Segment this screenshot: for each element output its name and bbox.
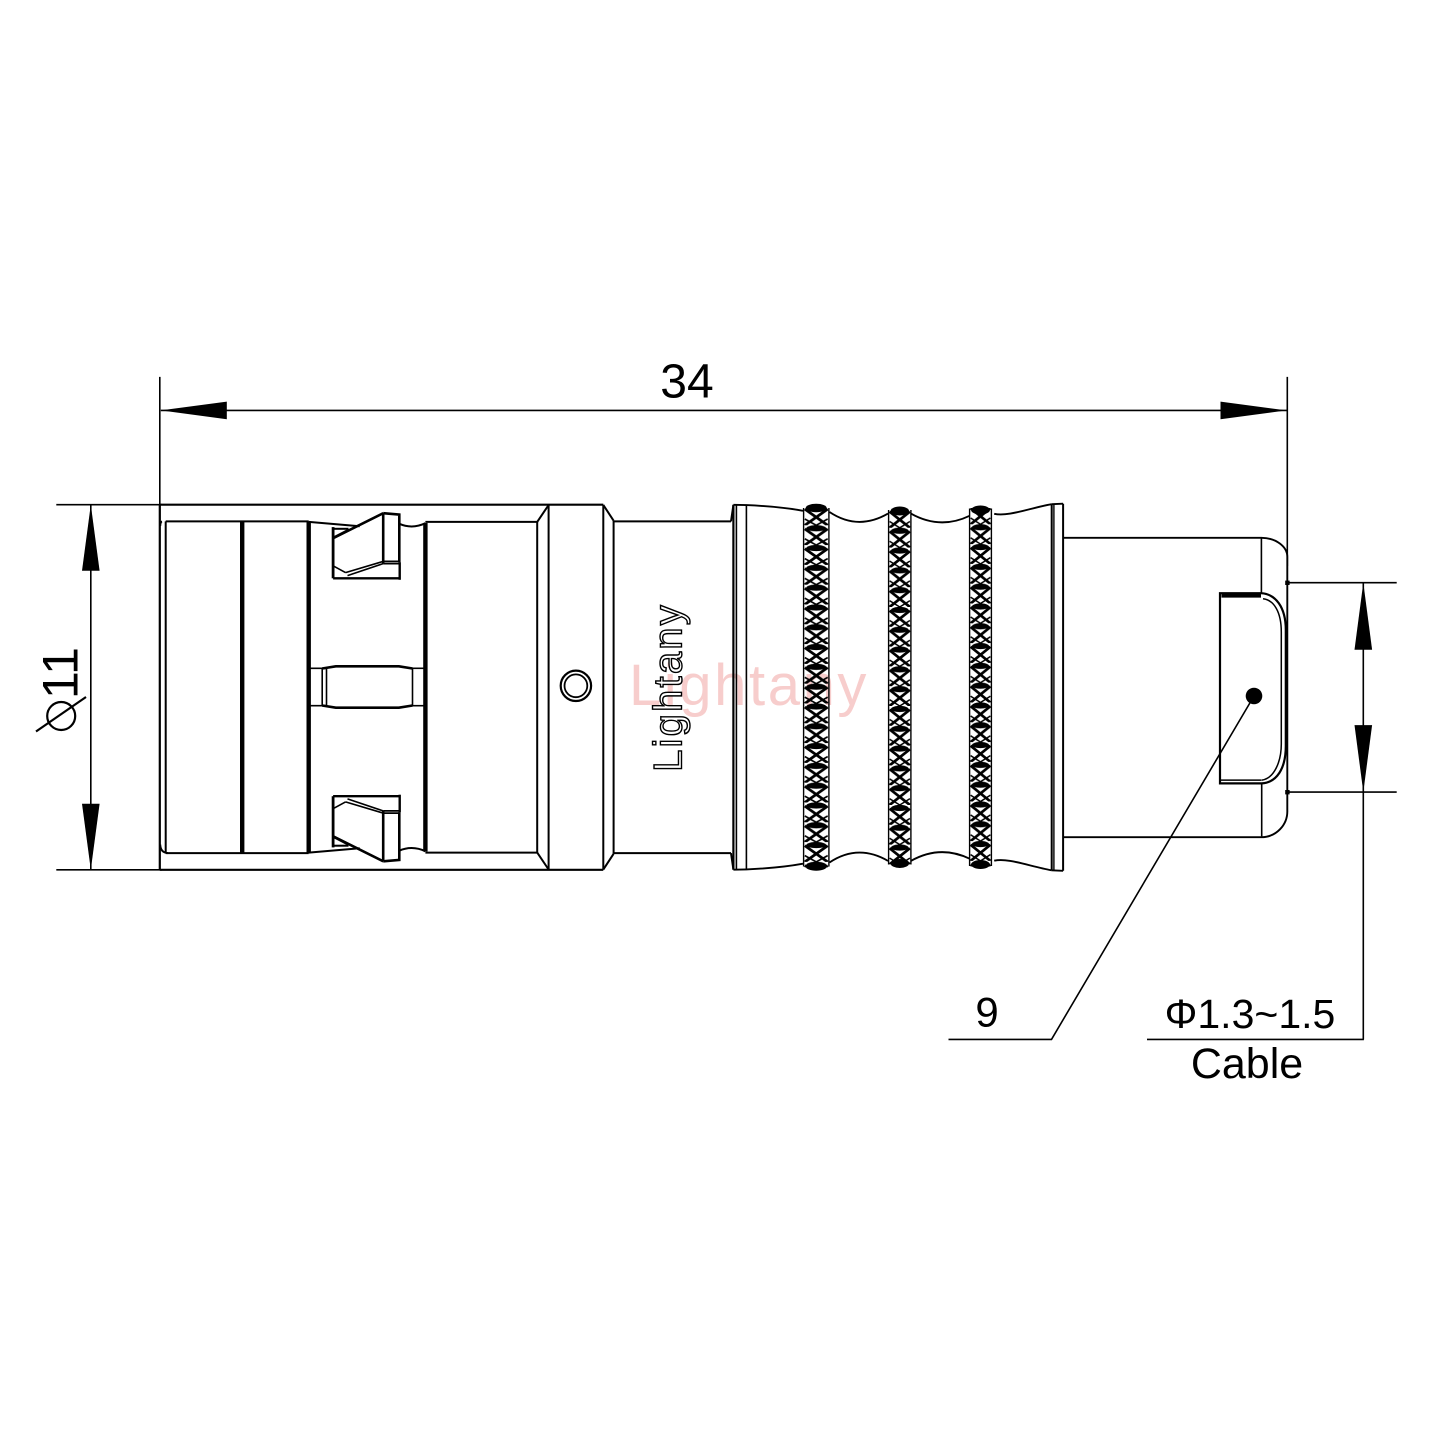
svg-text:Lightany: Lightany [647,603,691,772]
svg-text:11: 11 [33,647,89,699]
svg-text:Φ1.3~1.5: Φ1.3~1.5 [1165,991,1336,1037]
svg-text:9: 9 [975,989,998,1036]
svg-text:Cable: Cable [1191,1040,1303,1088]
svg-text:34: 34 [660,356,713,409]
